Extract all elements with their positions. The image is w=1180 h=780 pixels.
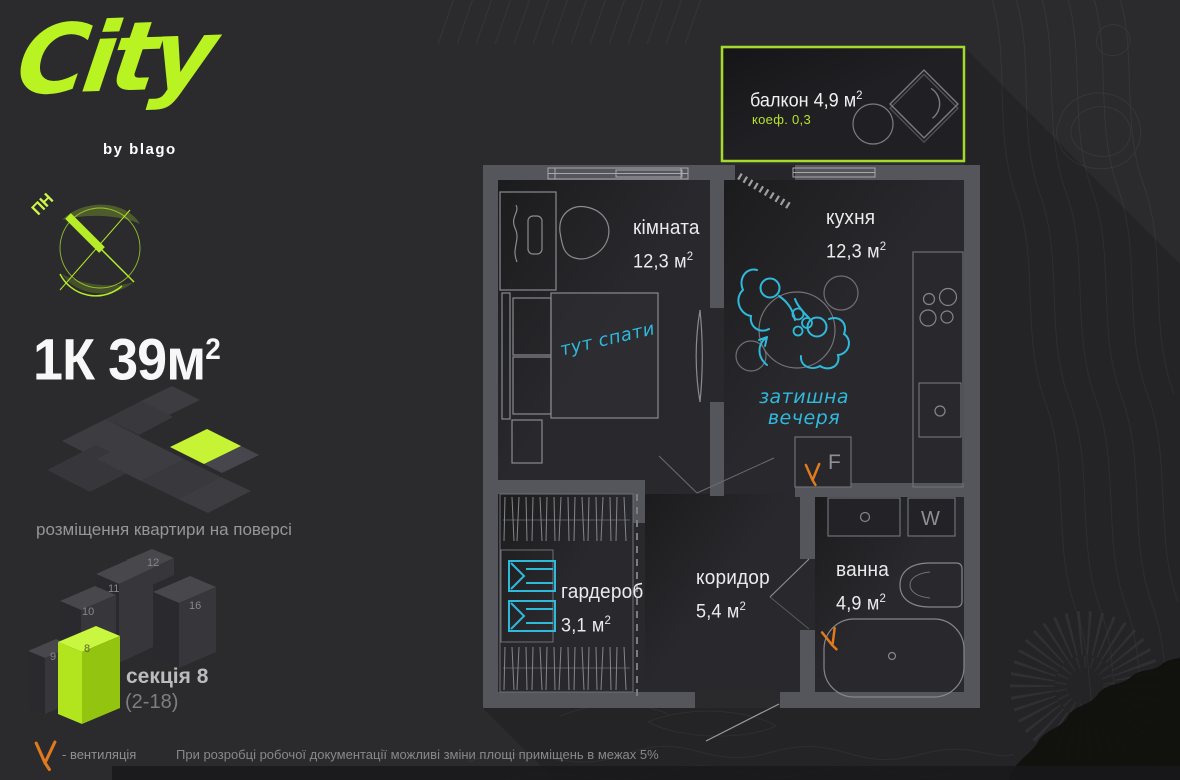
floor-plate-shapes bbox=[47, 386, 259, 513]
legend-vent-label: - вентиляція bbox=[62, 747, 136, 762]
brand-logo: City bbox=[10, 0, 218, 116]
bathroom-label: ванна 4,9 м2 bbox=[836, 558, 889, 616]
floor-plan: F bbox=[483, 165, 980, 741]
legend-vent-icon bbox=[36, 742, 55, 770]
bath-sink-unit bbox=[828, 498, 900, 536]
section-box-16 bbox=[153, 576, 216, 668]
room-label: кімната 12,3 м2 bbox=[633, 216, 700, 274]
fridge-box bbox=[795, 437, 851, 487]
note-dinner: затишна вечеря bbox=[756, 387, 852, 429]
section-box-8-highlight bbox=[58, 626, 120, 724]
section-number: 12 bbox=[147, 557, 159, 569]
compass-north-label: ПН bbox=[29, 190, 57, 218]
bottom-strip bbox=[112, 766, 1180, 780]
brand-byline: by blago bbox=[103, 141, 177, 158]
section-number: 10 bbox=[82, 606, 94, 618]
section-number-highlight: 8 bbox=[84, 643, 90, 655]
floor-plate-caption: розміщення квартири на поверсі bbox=[36, 520, 292, 540]
washer-label: W bbox=[921, 508, 940, 530]
kitchen-label: кухня 12,3 м2 bbox=[826, 206, 886, 264]
apartment-title-text: 1К 39м bbox=[33, 327, 205, 392]
section-number: 11 bbox=[108, 583, 119, 595]
disclaimer: При розробці робочої документації можлив… bbox=[176, 747, 659, 762]
apartment-title: 1К 39м2 bbox=[33, 320, 220, 390]
balcony-door-opening bbox=[735, 165, 795, 180]
balcony-coef: коеф. 0,3 bbox=[752, 112, 811, 127]
section-number: 16 bbox=[189, 600, 201, 612]
compass-icon: ПН bbox=[29, 190, 140, 295]
fridge-label: F bbox=[828, 451, 841, 474]
balcony-label: балкон 4,9 м2 bbox=[750, 88, 863, 112]
poster: F bbox=[0, 0, 1180, 780]
section-boxes: 12 11 10 9 16 8 bbox=[28, 549, 216, 724]
entrance-opening bbox=[695, 692, 780, 708]
wardrobe-label: гардероб 3,1 м2 bbox=[561, 580, 643, 638]
corridor-label: коридор 5,4 м2 bbox=[696, 566, 770, 624]
section-floors-range: (2-18) bbox=[125, 691, 178, 714]
section-number: 9 bbox=[50, 651, 56, 663]
section-title: секція 8 bbox=[126, 665, 208, 689]
apartment-title-sup: 2 bbox=[205, 333, 220, 366]
